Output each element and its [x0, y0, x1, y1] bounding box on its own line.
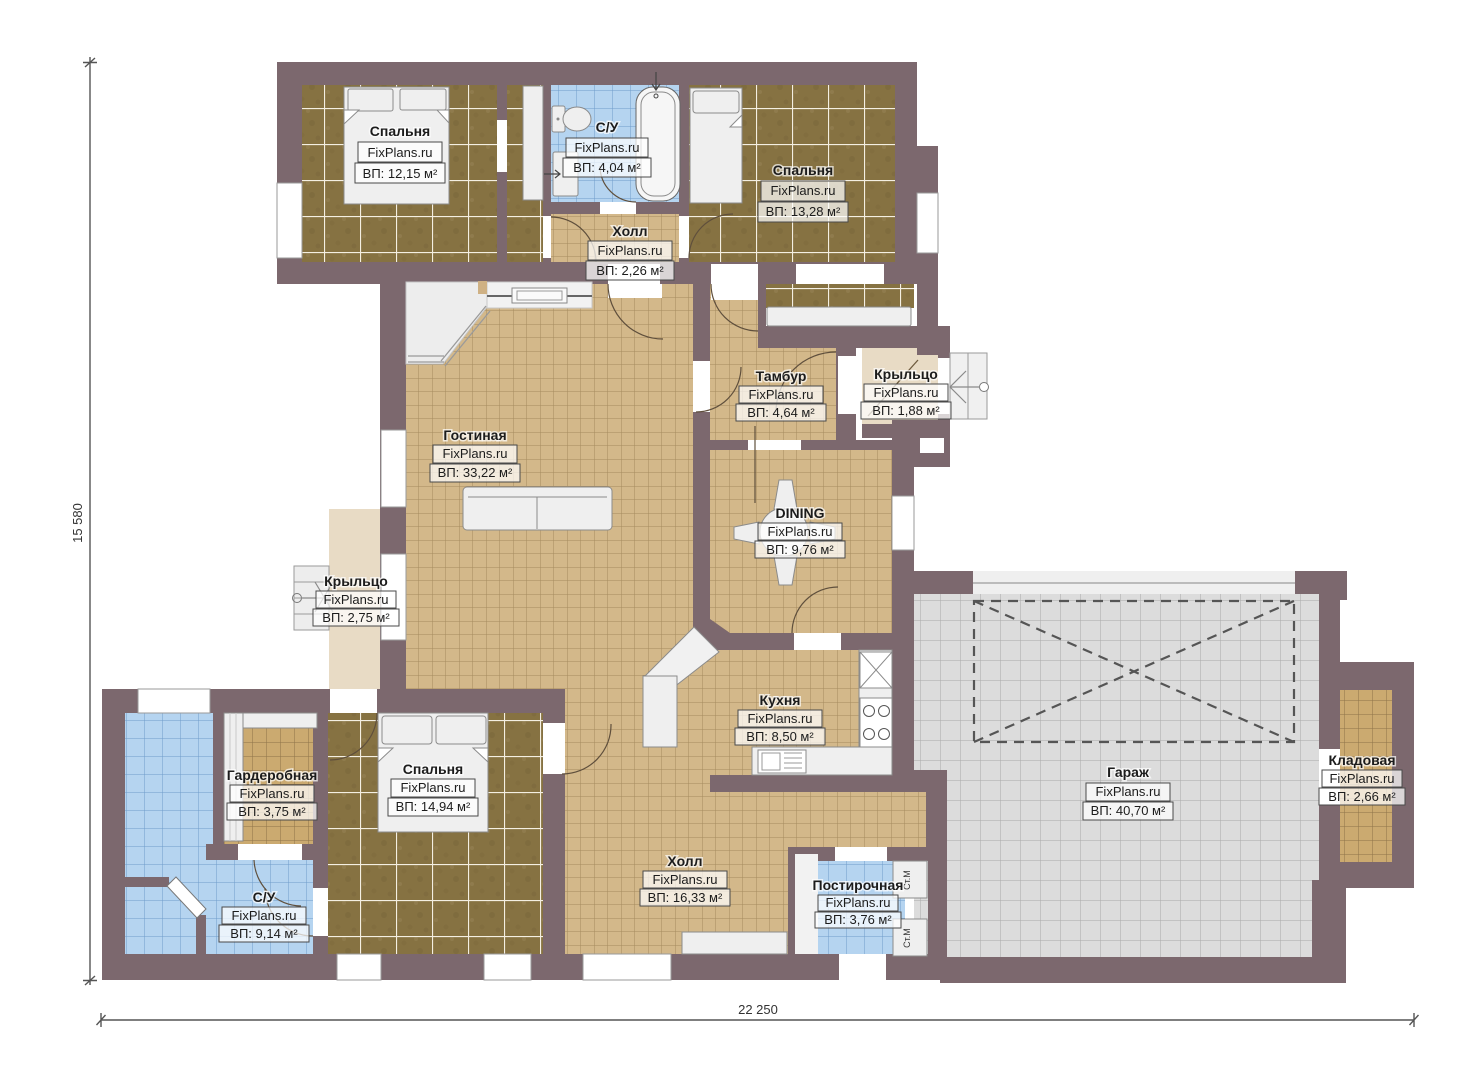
svg-text:Постирочная: Постирочная — [813, 877, 904, 893]
svg-text:FixPlans.ru: FixPlans.ru — [1329, 771, 1394, 786]
svg-text:ВП: 12,15 м²: ВП: 12,15 м² — [363, 166, 438, 181]
svg-text:Кладовая: Кладовая — [1328, 752, 1395, 768]
svg-text:15 580: 15 580 — [70, 503, 85, 543]
svg-text:ВП: 8,50 м²: ВП: 8,50 м² — [746, 729, 814, 744]
svg-text:ВП: 13,28 м²: ВП: 13,28 м² — [766, 204, 841, 219]
svg-text:FixPlans.ru: FixPlans.ru — [770, 183, 835, 198]
svg-text:FixPlans.ru: FixPlans.ru — [442, 446, 507, 461]
svg-text:Спальня: Спальня — [370, 123, 430, 139]
svg-text:FixPlans.ru: FixPlans.ru — [597, 243, 662, 258]
svg-text:Ст.М: Ст.М — [902, 928, 912, 948]
svg-text:Тамбур: Тамбур — [756, 368, 807, 384]
svg-text:Кухня: Кухня — [760, 692, 801, 708]
svg-text:Крыльцо: Крыльцо — [324, 573, 388, 589]
svg-text:Холл: Холл — [667, 853, 702, 869]
svg-text:FixPlans.ru: FixPlans.ru — [873, 385, 938, 400]
svg-text:ВП: 40,70 м²: ВП: 40,70 м² — [1091, 803, 1166, 818]
svg-text:22 250: 22 250 — [738, 1002, 778, 1017]
svg-text:ВП: 2,26 м²: ВП: 2,26 м² — [596, 263, 664, 278]
svg-text:FixPlans.ru: FixPlans.ru — [231, 908, 296, 923]
svg-text:FixPlans.ru: FixPlans.ru — [747, 711, 812, 726]
svg-text:С/У: С/У — [596, 119, 619, 135]
svg-text:ВП: 14,94 м²: ВП: 14,94 м² — [396, 799, 471, 814]
svg-text:ВП: 9,14 м²: ВП: 9,14 м² — [230, 926, 298, 941]
svg-text:DINING: DINING — [776, 505, 825, 521]
svg-text:Ст.М: Ст.М — [902, 870, 912, 890]
svg-text:FixPlans.ru: FixPlans.ru — [652, 872, 717, 887]
svg-text:FixPlans.ru: FixPlans.ru — [323, 592, 388, 607]
svg-text:Крыльцо: Крыльцо — [874, 366, 938, 382]
svg-text:FixPlans.ru: FixPlans.ru — [239, 786, 304, 801]
svg-text:С/У: С/У — [253, 889, 276, 905]
svg-text:ВП: 3,76 м²: ВП: 3,76 м² — [824, 912, 892, 927]
svg-text:Гараж: Гараж — [1107, 764, 1150, 780]
svg-text:FixPlans.ru: FixPlans.ru — [367, 145, 432, 160]
svg-text:ВП: 33,22 м²: ВП: 33,22 м² — [438, 465, 513, 480]
svg-text:Гардеробная: Гардеробная — [227, 767, 318, 783]
svg-text:FixPlans.ru: FixPlans.ru — [574, 140, 639, 155]
svg-text:ВП: 16,33 м²: ВП: 16,33 м² — [648, 890, 723, 905]
svg-text:Спальня: Спальня — [403, 761, 463, 777]
svg-text:Гостиная: Гостиная — [443, 427, 506, 443]
svg-text:ВП: 4,04 м²: ВП: 4,04 м² — [573, 160, 641, 175]
svg-text:ВП: 2,75 м²: ВП: 2,75 м² — [322, 610, 390, 625]
svg-text:ВП: 9,76 м²: ВП: 9,76 м² — [766, 542, 834, 557]
svg-text:FixPlans.ru: FixPlans.ru — [825, 895, 890, 910]
svg-text:FixPlans.ru: FixPlans.ru — [767, 524, 832, 539]
svg-text:ВП: 1,88 м²: ВП: 1,88 м² — [872, 403, 940, 418]
svg-text:ВП: 3,75 м²: ВП: 3,75 м² — [238, 804, 306, 819]
svg-text:Холл: Холл — [612, 223, 647, 239]
svg-text:FixPlans.ru: FixPlans.ru — [400, 780, 465, 795]
svg-text:ВП: 2,66 м²: ВП: 2,66 м² — [1328, 789, 1396, 804]
svg-text:FixPlans.ru: FixPlans.ru — [748, 387, 813, 402]
svg-text:FixPlans.ru: FixPlans.ru — [1095, 784, 1160, 799]
svg-text:ВП: 4,64 м²: ВП: 4,64 м² — [747, 405, 815, 420]
svg-text:Спальня: Спальня — [773, 162, 833, 178]
